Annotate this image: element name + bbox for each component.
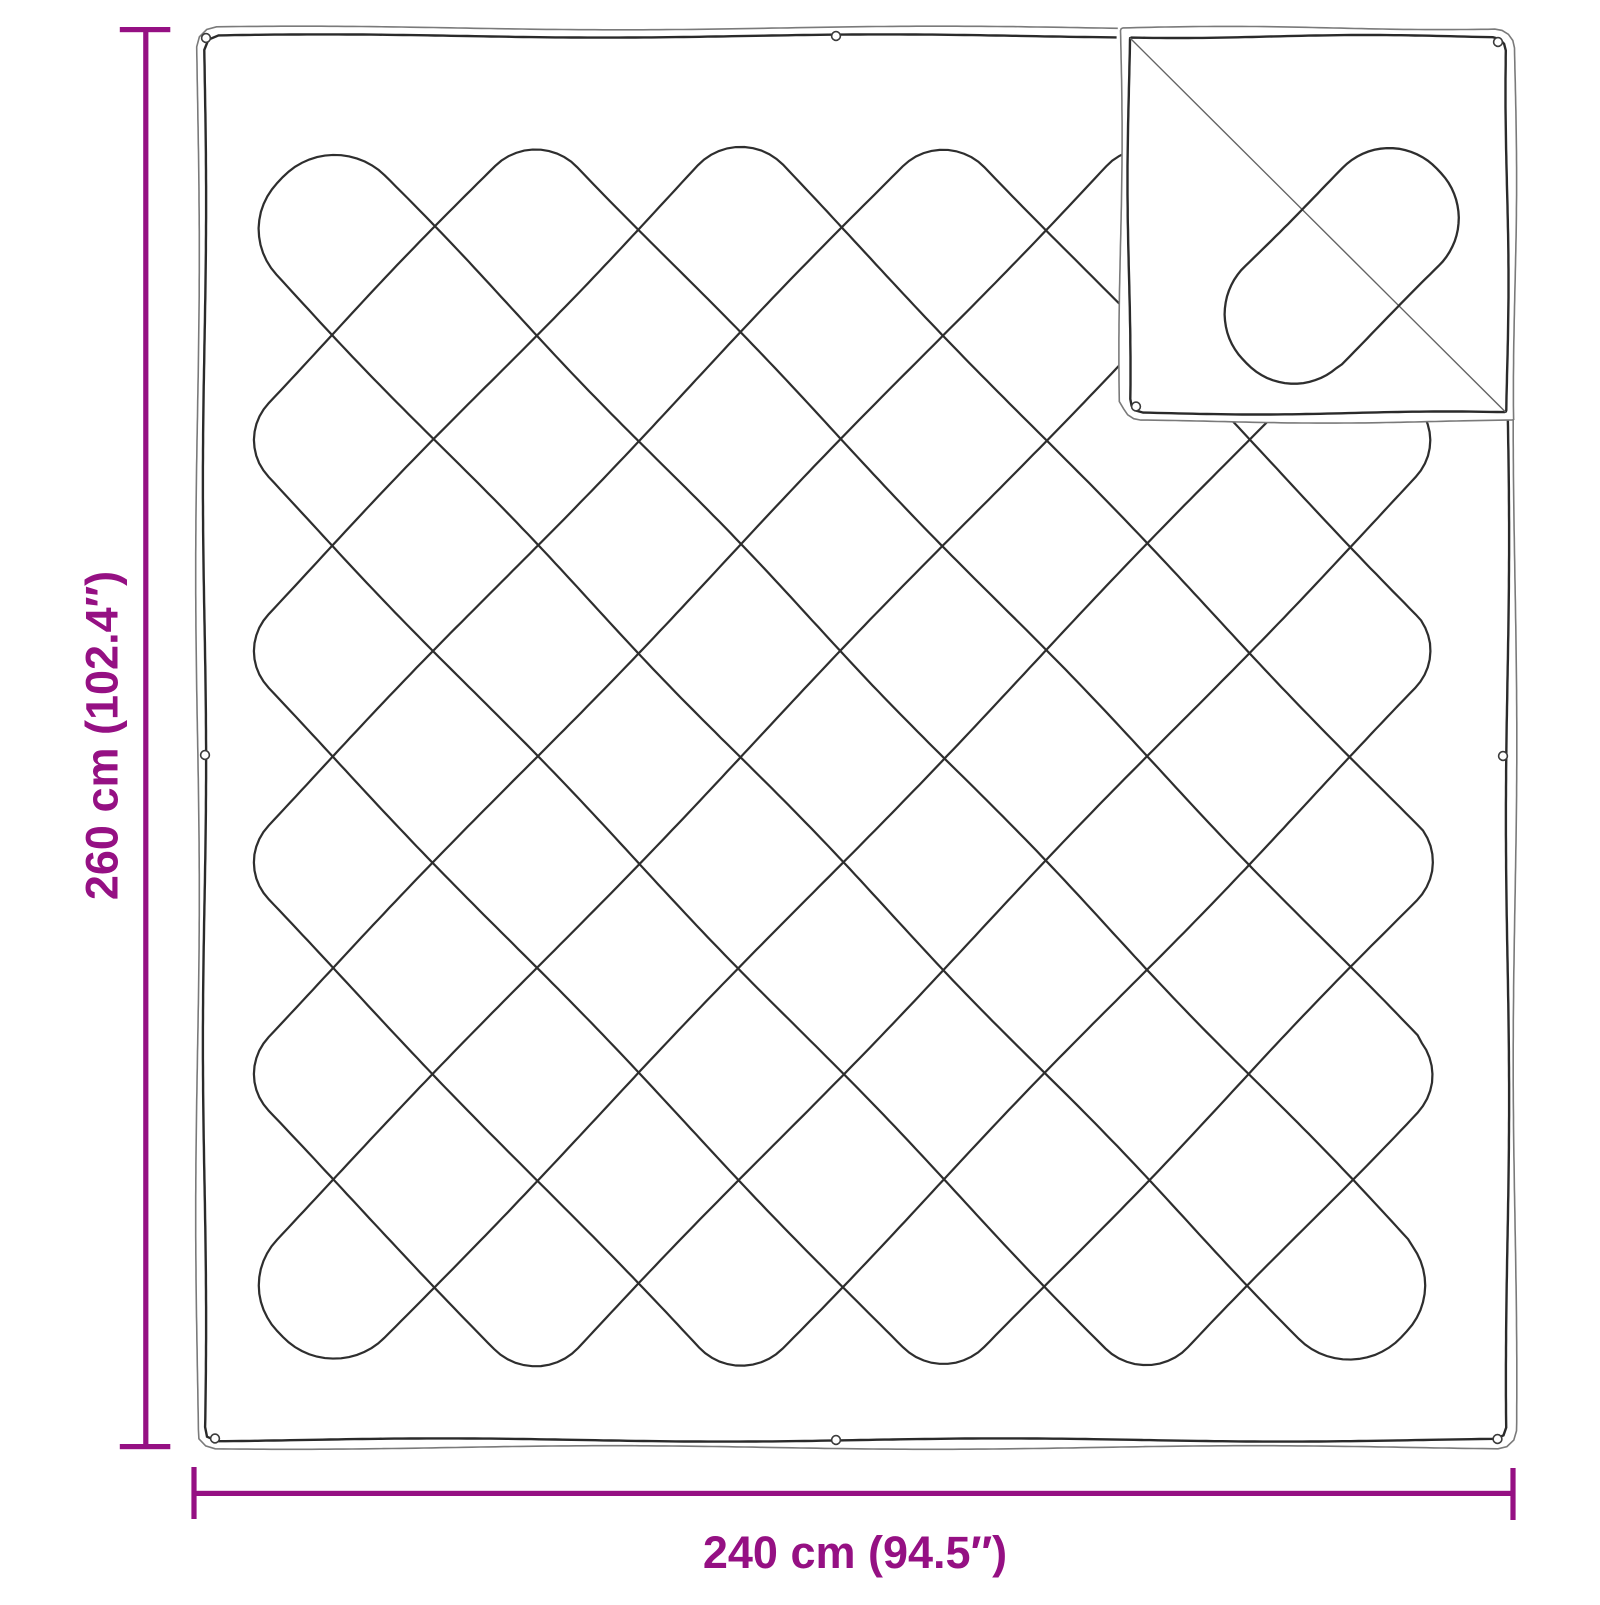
svg-text:260 cm (102.4″): 260 cm (102.4″) (77, 571, 128, 900)
svg-text:240 cm (94.5″): 240 cm (94.5″) (703, 1527, 1007, 1578)
